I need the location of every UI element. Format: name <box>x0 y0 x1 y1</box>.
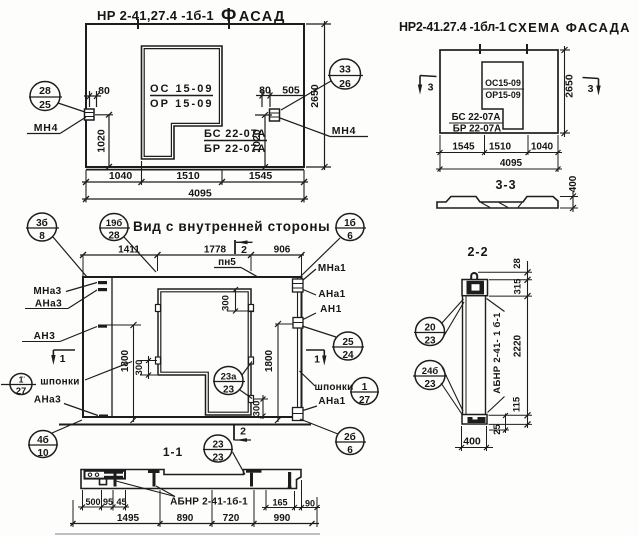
svg-text:990: 990 <box>274 513 291 524</box>
svg-text:1545: 1545 <box>452 142 475 153</box>
svg-text:400: 400 <box>463 436 481 448</box>
svg-text:2-2: 2-2 <box>467 245 488 259</box>
svg-text:2б: 2б <box>344 431 356 443</box>
svg-text:Вид с внутренней стороны: Вид с внутренней стороны <box>133 219 330 234</box>
svg-text:1495: 1495 <box>117 513 140 524</box>
svg-text:8: 8 <box>39 231 45 242</box>
svg-text:2650: 2650 <box>564 74 576 98</box>
svg-text:95: 95 <box>103 497 113 507</box>
svg-text:АНа3: АНа3 <box>35 299 62 310</box>
svg-text:АН3: АН3 <box>34 331 56 342</box>
svg-text:27: 27 <box>359 395 371 406</box>
svg-text:28: 28 <box>108 231 120 242</box>
svg-text:1: 1 <box>362 382 368 393</box>
svg-text:26: 26 <box>339 78 351 90</box>
svg-text:80: 80 <box>98 85 110 97</box>
svg-text:шпонки: шпонки <box>315 382 354 393</box>
svg-text:28: 28 <box>512 258 523 269</box>
svg-text:1: 1 <box>60 353 66 365</box>
svg-text:АНа1: АНа1 <box>318 289 345 300</box>
svg-text:1510: 1510 <box>176 170 200 182</box>
svg-text:1б: 1б <box>344 217 356 229</box>
svg-text:2: 2 <box>240 426 246 438</box>
svg-text:24б: 24б <box>422 366 439 377</box>
svg-text:2650: 2650 <box>309 84 321 108</box>
svg-text:АБНР 2-41- 1 б-1: АБНР 2-41- 1 б-1 <box>492 312 503 394</box>
svg-text:1: 1 <box>314 354 320 366</box>
svg-text:24: 24 <box>342 350 354 361</box>
svg-text:БР 22-07А: БР 22-07А <box>453 124 501 135</box>
svg-text:23: 23 <box>212 440 224 451</box>
svg-text:19б: 19б <box>106 218 123 229</box>
svg-text:115: 115 <box>512 396 523 412</box>
svg-text:1800: 1800 <box>264 349 275 372</box>
svg-text:1020: 1020 <box>96 129 108 153</box>
svg-text:300: 300 <box>252 401 263 417</box>
svg-text:27: 27 <box>16 386 27 397</box>
svg-text:505: 505 <box>282 85 300 97</box>
svg-text:МН4: МН4 <box>34 122 59 134</box>
svg-text:АНа3: АНа3 <box>34 395 61 406</box>
svg-text:4б: 4б <box>37 434 49 446</box>
svg-text:3: 3 <box>428 82 434 94</box>
svg-text:20: 20 <box>424 323 436 334</box>
svg-text:НР2-41.27.4 -1бл-1: НР2-41.27.4 -1бл-1 <box>399 20 506 34</box>
svg-text:33: 33 <box>339 64 351 76</box>
svg-text:300: 300 <box>134 360 145 376</box>
svg-text:НР 2-41,27.4 -1б-1: НР 2-41,27.4 -1б-1 <box>97 8 214 23</box>
svg-text:1020: 1020 <box>251 129 263 153</box>
svg-text:2220: 2220 <box>513 334 524 357</box>
svg-text:25: 25 <box>342 337 354 348</box>
svg-text:3-3: 3-3 <box>495 178 516 192</box>
svg-text:23: 23 <box>223 385 235 396</box>
svg-text:3б: 3б <box>36 217 48 229</box>
svg-text:БС 22-07А: БС 22-07А <box>452 112 501 123</box>
svg-text:3: 3 <box>588 83 594 95</box>
svg-text:6: 6 <box>347 445 353 456</box>
svg-text:906: 906 <box>274 245 291 256</box>
svg-text:23: 23 <box>424 379 436 390</box>
svg-text:400: 400 <box>568 175 579 192</box>
svg-text:1510: 1510 <box>489 142 512 153</box>
svg-text:ОР15-09: ОР15-09 <box>485 90 520 100</box>
svg-text:АБНР 2-41-1б-1: АБНР 2-41-1б-1 <box>170 496 248 508</box>
svg-text:АНа1: АНа1 <box>318 396 345 407</box>
svg-text:МНа3: МНа3 <box>33 286 61 297</box>
svg-text:23: 23 <box>212 453 224 464</box>
svg-text:4095: 4095 <box>188 188 212 200</box>
svg-text:28: 28 <box>39 85 51 97</box>
svg-text:АН1: АН1 <box>320 304 342 315</box>
svg-text:45: 45 <box>116 497 126 507</box>
svg-text:4095: 4095 <box>500 158 523 169</box>
svg-text:315: 315 <box>513 278 524 295</box>
svg-text:2: 2 <box>241 244 247 256</box>
svg-text:1778: 1778 <box>204 245 227 256</box>
svg-text:ОС15-09: ОС15-09 <box>485 78 521 88</box>
svg-text:МН4: МН4 <box>332 125 357 137</box>
svg-text:1800: 1800 <box>120 349 131 372</box>
svg-text:300: 300 <box>221 295 232 311</box>
svg-text:25: 25 <box>39 99 51 111</box>
svg-text:23а: 23а <box>221 372 238 383</box>
svg-text:890: 890 <box>177 513 194 524</box>
svg-text:720: 720 <box>223 513 240 524</box>
svg-text:1040: 1040 <box>109 170 133 182</box>
svg-text:25: 25 <box>492 424 503 435</box>
svg-text:23: 23 <box>424 336 436 347</box>
svg-text:80: 80 <box>259 85 271 97</box>
svg-text:СХЕМА ФАСАДА: СХЕМА ФАСАДА <box>508 20 630 35</box>
svg-text:шпонки: шпонки <box>40 377 79 388</box>
svg-text:10: 10 <box>37 448 49 459</box>
svg-text:1411: 1411 <box>118 245 140 256</box>
svg-text:пн5: пн5 <box>218 257 236 268</box>
svg-text:МНа1: МНа1 <box>318 263 346 274</box>
svg-text:165: 165 <box>272 498 287 508</box>
svg-text:1-1: 1-1 <box>163 445 183 459</box>
svg-text:90: 90 <box>305 499 315 509</box>
svg-text:1545: 1545 <box>249 170 273 182</box>
svg-text:500: 500 <box>85 497 100 507</box>
svg-text:6: 6 <box>347 231 353 242</box>
svg-text:1040: 1040 <box>531 142 554 153</box>
